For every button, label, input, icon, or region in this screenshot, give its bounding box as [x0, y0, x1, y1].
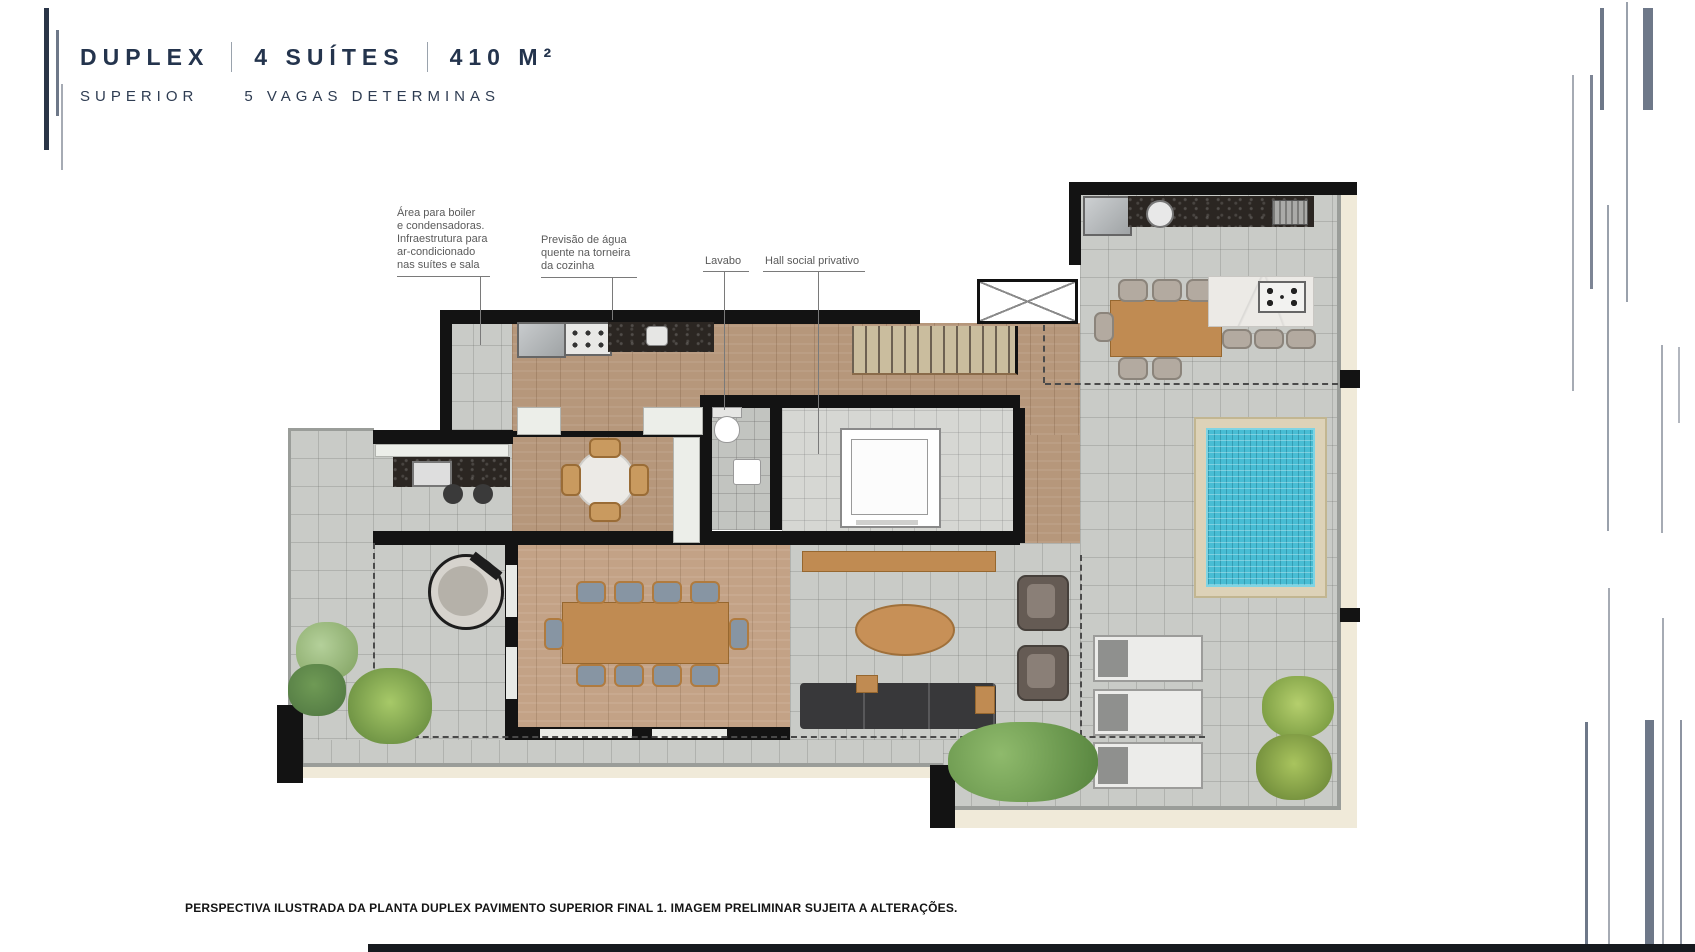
island-chair-3 — [1286, 329, 1316, 349]
wall-gourmet-top — [1069, 182, 1357, 195]
plant-palm-right-1 — [1262, 676, 1334, 738]
dining-chair-6 — [614, 664, 644, 687]
pool-water — [1206, 428, 1315, 587]
kitchen-cabinet-1 — [517, 407, 561, 435]
annotation-hall-underline — [763, 271, 865, 272]
annotation-hall-leader — [818, 272, 819, 454]
floor-plan: Área para boiler e condensadoras. Infrae… — [0, 0, 1695, 952]
shaft-x-box — [977, 279, 1078, 324]
hanging-chair-cushion — [438, 566, 488, 616]
breakfast-buffet — [673, 437, 700, 543]
dining-chair-5 — [576, 664, 606, 687]
dashed-line-gourmet-horizontal — [1045, 383, 1338, 385]
gourmet-cooktop — [1258, 281, 1306, 313]
annotation-water-leader — [612, 278, 613, 320]
dining-chair-10 — [729, 618, 749, 650]
annotation-water-underline — [541, 277, 637, 278]
sun-lounger-1-cushion — [1098, 640, 1128, 677]
dining-table — [562, 602, 729, 664]
right-accent-line-8 — [1678, 347, 1680, 423]
service-stool-1 — [443, 484, 463, 504]
annotation-water: Previsão de água quente na torneira da c… — [541, 234, 641, 273]
hanging-chair — [428, 554, 504, 630]
armchair-1-seat — [1027, 584, 1055, 618]
dashed-line-gourmet-vertical — [1043, 325, 1045, 383]
kitchen-stove — [564, 322, 612, 356]
annotation-boiler-underline — [397, 276, 490, 277]
gourmet-cabinet — [1083, 196, 1132, 236]
sun-lounger-2 — [1093, 689, 1203, 736]
bottom-bar — [368, 944, 1695, 952]
page: DUPLEX 4 SUÍTES 410 M² SUPERIOR 5 VAGAS … — [0, 0, 1695, 952]
wall-right-segment-2 — [1340, 608, 1360, 622]
kitchen-cabinet-2 — [643, 407, 703, 435]
right-accent-line-7 — [1661, 345, 1663, 533]
dining-chair-2 — [614, 581, 644, 604]
wall-hall-right — [1013, 408, 1025, 543]
lavabo-sink — [733, 459, 761, 485]
right-accent-line-5 — [1590, 75, 1593, 289]
right-accent-line-13 — [1680, 720, 1682, 944]
wall-lavabo-top — [700, 395, 1020, 408]
sun-lounger-2-cushion — [1098, 694, 1128, 731]
breakfast-chair-right — [629, 464, 649, 496]
kitchen-jars — [646, 326, 668, 346]
annotation-boiler: Área para boiler e condensadoras. Infrae… — [397, 207, 497, 272]
sideboard — [802, 551, 996, 572]
right-accent-line-1 — [1600, 8, 1604, 110]
service-stool-2 — [473, 484, 493, 504]
gourmet-hood — [1272, 200, 1308, 225]
toilet-bowl — [714, 416, 740, 443]
sofa — [800, 683, 996, 729]
island-chair-2 — [1254, 329, 1284, 349]
service-sink — [412, 461, 452, 487]
breakfast-chair-top — [589, 438, 621, 458]
dining-chair-4 — [690, 581, 720, 604]
border-bottom-right — [955, 810, 1357, 828]
border-right — [1341, 195, 1357, 810]
armchair-2 — [1017, 645, 1069, 701]
breakfast-chair-left — [561, 464, 581, 496]
right-accent-line-6 — [1607, 205, 1609, 531]
dining-chair-3 — [652, 581, 682, 604]
plant-palm-left — [348, 668, 432, 744]
gourmet-chair-6 — [1094, 312, 1114, 342]
dashed-line-living-vertical — [1080, 555, 1082, 736]
dining-chair-9 — [544, 618, 564, 650]
right-accent-line-11 — [1645, 720, 1654, 944]
right-accent-line-10 — [1608, 588, 1610, 944]
coffee-table-oval — [855, 604, 955, 656]
breakfast-table — [575, 450, 635, 510]
dining-chair-8 — [690, 664, 720, 687]
armchair-1 — [1017, 575, 1069, 631]
gourmet-table — [1110, 300, 1222, 357]
right-accent-line-9 — [1585, 722, 1588, 944]
gourmet-sink — [1146, 200, 1174, 228]
annotation-boiler-leader — [480, 277, 481, 345]
armchair-2-seat — [1027, 654, 1055, 688]
sofa-side-table-right — [975, 686, 995, 714]
sofa-side-table-left — [856, 675, 878, 693]
elevator-cab-inner — [851, 439, 928, 515]
border-bottom-left — [288, 767, 943, 778]
sun-lounger-3 — [1093, 742, 1203, 789]
dining-chair-1 — [576, 581, 606, 604]
wall-right-segment-1 — [1340, 370, 1360, 388]
window-dining-left-2 — [506, 647, 517, 699]
dining-chair-7 — [652, 664, 682, 687]
wall-tech-left — [440, 323, 452, 430]
plant-bush-center — [948, 722, 1098, 802]
wall-service-top — [373, 430, 513, 444]
gourmet-chair-2 — [1152, 279, 1182, 302]
annotation-lavabo-underline — [703, 271, 749, 272]
gourmet-chair-1 — [1118, 279, 1148, 302]
plant-bush-left-2 — [288, 664, 346, 716]
plant-palm-right-2 — [1256, 734, 1332, 800]
annotation-lavabo-leader — [724, 272, 725, 410]
boundary-top-left-terrace — [288, 428, 374, 431]
tech-area-floor — [445, 323, 512, 430]
elevator-cab — [840, 428, 941, 528]
gourmet-chair-4 — [1118, 357, 1148, 380]
column-bottom-left — [277, 705, 303, 783]
right-accent-line-2 — [1626, 2, 1628, 302]
disclaimer-caption: PERSPECTIVA ILUSTRADA DA PLANTA DUPLEX P… — [185, 901, 958, 915]
wall-lavabo-hall-divider — [770, 408, 782, 530]
right-accent-line-3 — [1643, 8, 1653, 110]
breakfast-chair-bottom — [589, 502, 621, 522]
annotation-lavabo: Lavabo — [705, 255, 765, 268]
sun-lounger-3-cushion — [1098, 747, 1128, 784]
kitchen-fridge — [517, 322, 566, 358]
service-window — [375, 444, 509, 457]
gourmet-chair-5 — [1152, 357, 1182, 380]
wall-gourmet-left — [1069, 195, 1081, 265]
island-chair-1 — [1222, 329, 1252, 349]
sun-lounger-1 — [1093, 635, 1203, 682]
window-dining-left-1 — [506, 565, 517, 617]
right-accent-line-12 — [1662, 618, 1664, 944]
right-accent-line-4 — [1572, 75, 1574, 391]
staircase — [852, 326, 1018, 375]
annotation-hall: Hall social privativo — [765, 255, 885, 268]
elevator-door — [856, 520, 918, 525]
